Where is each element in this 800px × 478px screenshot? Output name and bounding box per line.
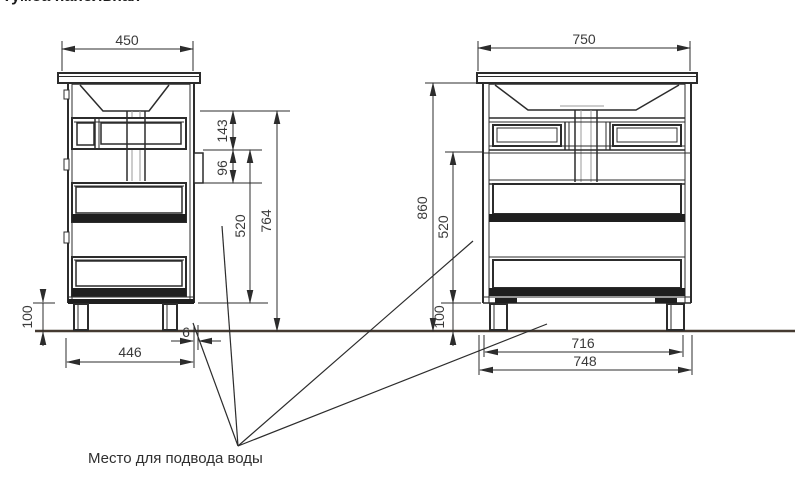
dim-143: 143 (214, 111, 233, 150)
dim-label-860: 860 (414, 196, 430, 220)
base-and-legs-side (68, 297, 194, 330)
dim-label-100-front: 100 (431, 305, 447, 329)
basin-front-profile (489, 84, 685, 110)
dim-100-front: 100 (431, 303, 453, 346)
dim-520-side: 520 (232, 150, 250, 303)
bottom-drawer-side (72, 257, 186, 296)
vanity-dimension-drawing: 450 143 96 520 (0, 0, 800, 478)
mount-bracket-side (194, 153, 203, 183)
dim-label-750: 750 (572, 31, 596, 47)
dim-label-143: 143 (214, 119, 230, 143)
dim-520-front: 520 (435, 152, 453, 303)
front-view-cabinet (477, 73, 697, 330)
upper-drawer-front (483, 118, 691, 153)
dim-label-748: 748 (573, 353, 597, 369)
middle-drawer-side (72, 183, 186, 222)
dim-label-96: 96 (214, 160, 230, 176)
dim-764: 764 (258, 111, 277, 331)
dim-100-side: 100 (19, 289, 55, 346)
drawing-page: Тумба напольная (0, 0, 800, 478)
base-and-legs-front (483, 297, 691, 330)
dim-label-764: 764 (258, 209, 274, 233)
dim-label-520-front: 520 (435, 215, 451, 239)
bottom-drawer-front (489, 257, 685, 296)
dim-450: 450 (62, 32, 193, 71)
dim-label-100-side: 100 (19, 305, 35, 329)
dim-860: 860 (414, 83, 433, 331)
dim-96: 96 (214, 150, 233, 183)
middle-drawer-front (489, 180, 685, 222)
dim-label-520-side: 520 (232, 214, 248, 238)
dim-750: 750 (478, 31, 690, 71)
dim-label-716: 716 (571, 335, 595, 351)
dim-6: 6 (171, 324, 221, 350)
upper-drawer-side (72, 118, 186, 149)
dim-label-450: 450 (115, 32, 139, 48)
side-view-cabinet (58, 73, 203, 330)
water-supply-caption: Место для подвода воды (88, 450, 263, 467)
dim-label-446: 446 (118, 344, 142, 360)
dim-label-6: 6 (182, 324, 190, 340)
